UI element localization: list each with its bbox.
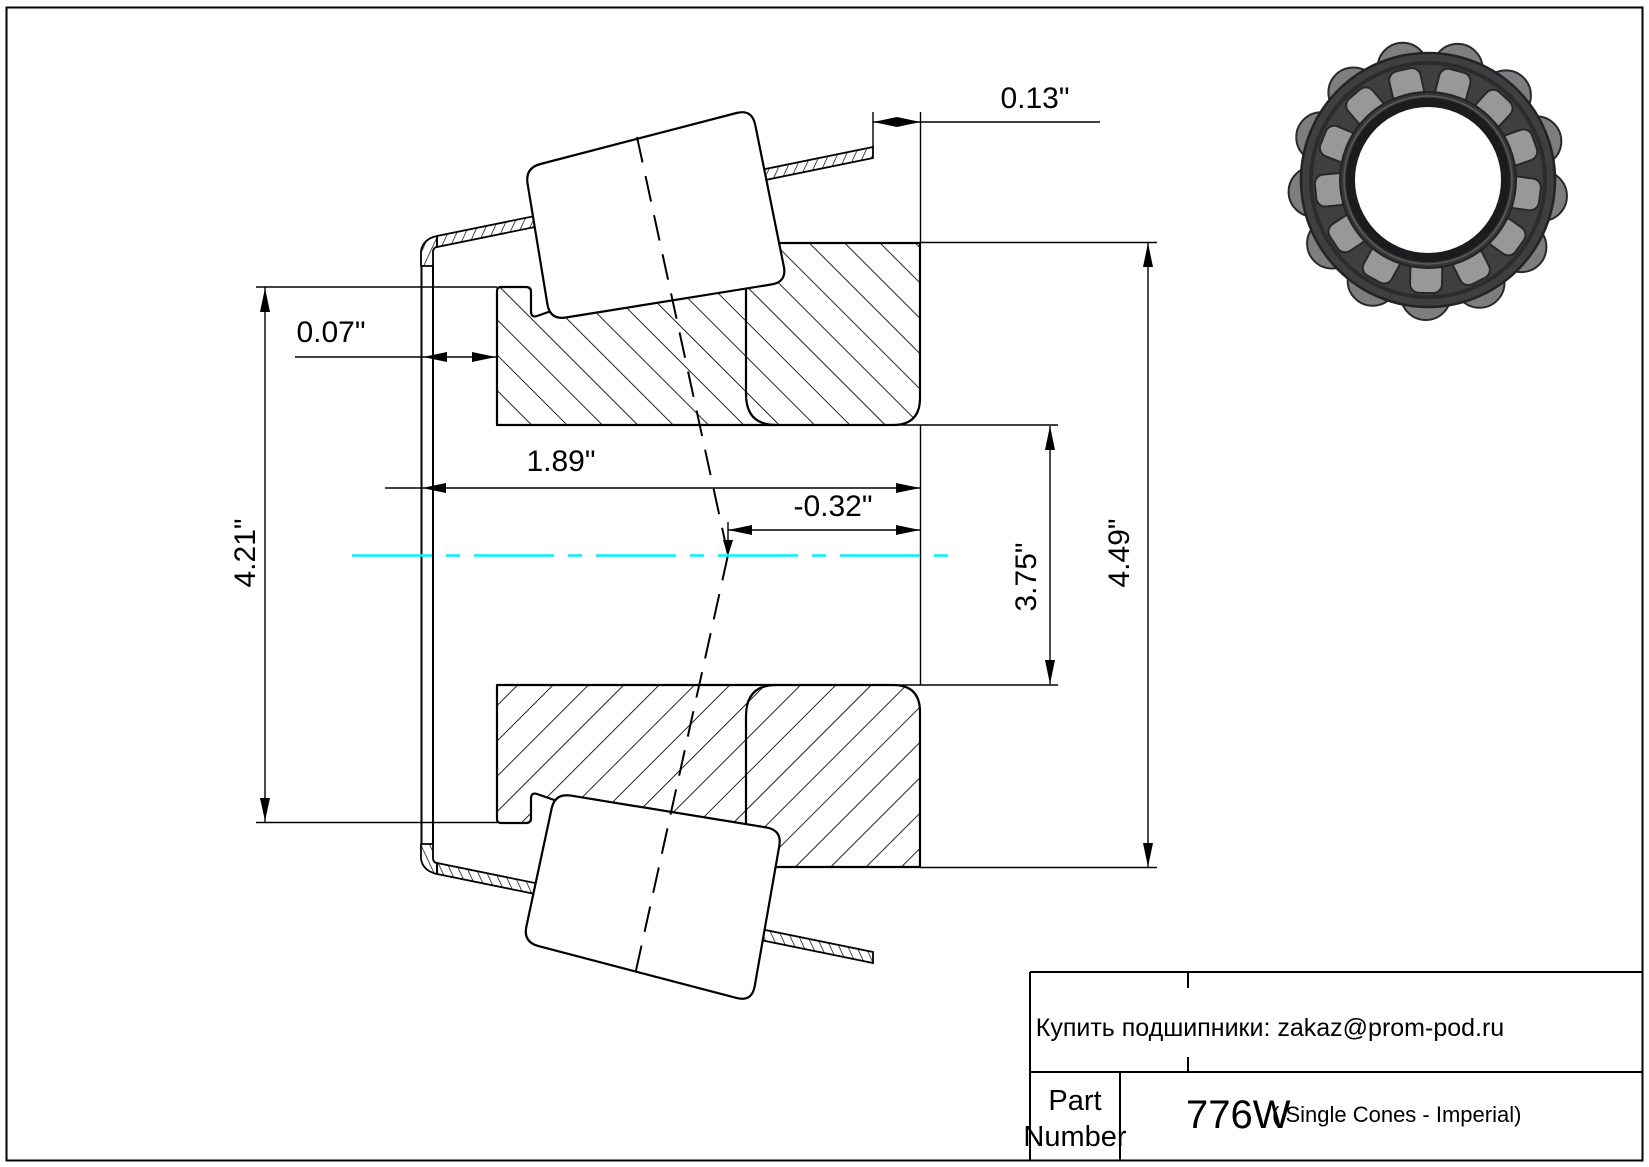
dim-text-449: 4.49" bbox=[1103, 518, 1136, 587]
technical-drawing-canvas: 0.13" 0.07" 1.89" -0.32" 4.21" 3.75" 4.4… bbox=[0, 0, 1649, 1167]
cage-hook-upper bbox=[421, 236, 437, 266]
dim-text-013: 0.13" bbox=[1000, 82, 1069, 115]
dim-text-375: 3.75" bbox=[1010, 542, 1043, 611]
dim-text-007: 0.07" bbox=[296, 316, 365, 349]
cage-hook-lower bbox=[421, 844, 437, 874]
drawing-page: 0.13" 0.07" 1.89" -0.32" 4.21" 3.75" 4.4… bbox=[0, 0, 1649, 1167]
dim-text-421: 4.21" bbox=[229, 518, 262, 587]
roller-lower bbox=[526, 795, 780, 999]
title-block: Купить подшипники: zakaz@prom-pod.ru Par… bbox=[1023, 972, 1643, 1161]
part-label-line2: Number bbox=[1023, 1121, 1126, 1153]
bearing-bore-hole bbox=[1355, 107, 1501, 253]
dim-text-189: 1.89" bbox=[526, 445, 595, 478]
vendor-note: Купить подшипники: zakaz@prom-pod.ru bbox=[1036, 1014, 1504, 1042]
dim-text-neg032: -0.32" bbox=[793, 490, 872, 523]
roller-upper bbox=[527, 112, 784, 318]
bearing-photo bbox=[1289, 43, 1567, 320]
part-series: ( Single Cones - Imperial) bbox=[1272, 1102, 1521, 1127]
part-label-line1: Part bbox=[1048, 1085, 1101, 1117]
